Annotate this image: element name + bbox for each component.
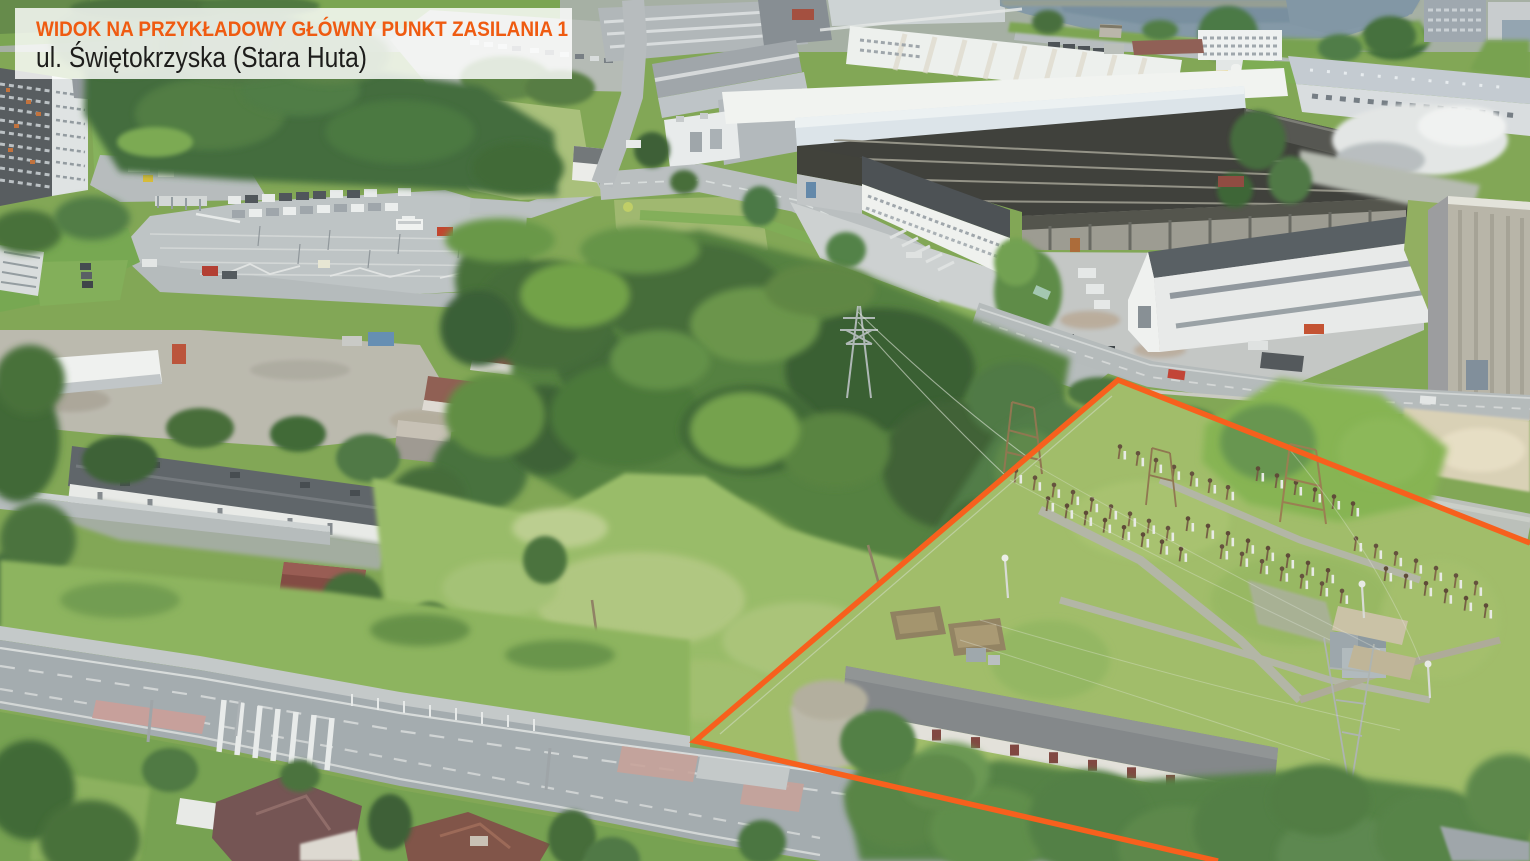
svg-text:ul. Świętokrzyska (Stara Huta): ul. Świętokrzyska (Stara Huta): [36, 40, 367, 74]
svg-text:WIDOK NA PRZYKŁADOWY GŁÓWNY P: WIDOK NA PRZYKŁADOWY GŁÓWNY PUNKT ZASILA…: [36, 17, 568, 41]
